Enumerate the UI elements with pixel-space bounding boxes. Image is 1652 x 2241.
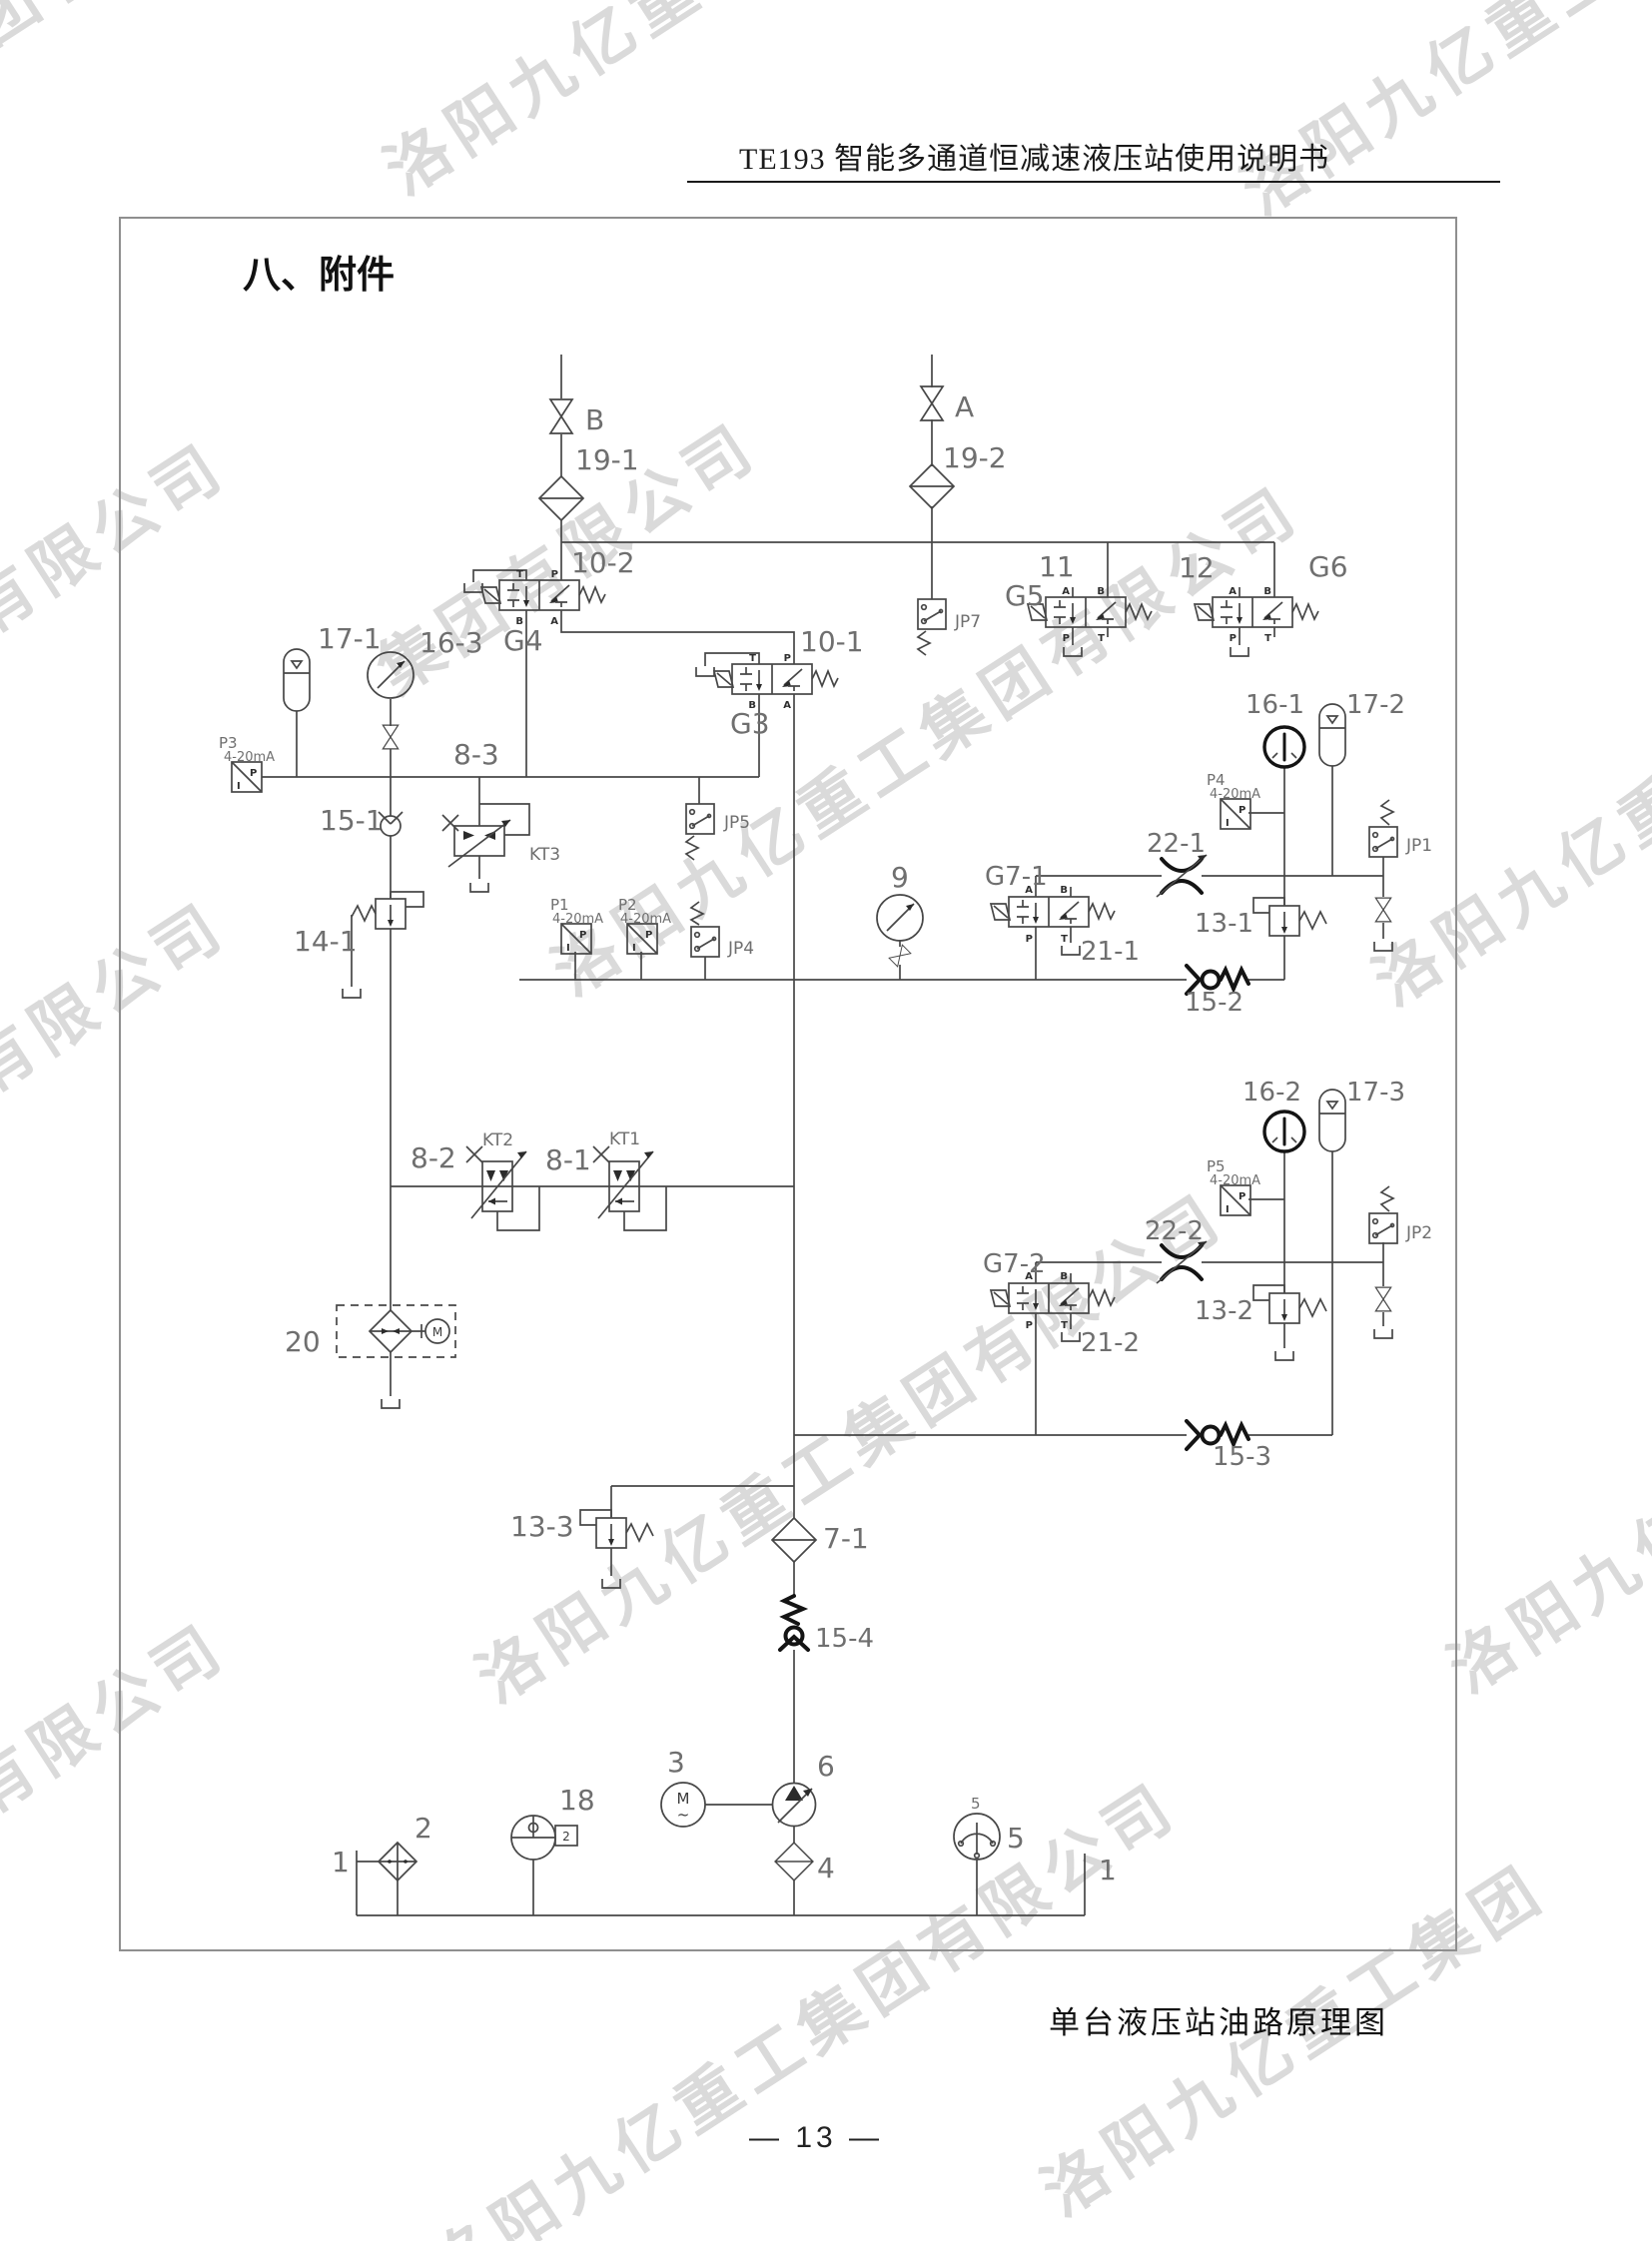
test-valve-9 [889, 945, 911, 967]
label-G4: G4 [503, 624, 543, 657]
port-letter: B [1263, 586, 1271, 597]
solenoid-valve-G6 [1195, 597, 1318, 627]
pipe-lines [262, 355, 1383, 1915]
port-letter: P [1239, 1191, 1245, 1202]
label-JP1: JP1 [1405, 836, 1432, 856]
label-15-2: 15-2 [1185, 988, 1243, 1018]
motor-letter: M [432, 1325, 442, 1339]
label-8-1: 8-1 [545, 1143, 591, 1176]
transmitter-P4: P I [1221, 799, 1250, 829]
label-10-1: 10-1 [800, 625, 864, 658]
port-letter: P [1239, 805, 1245, 816]
port-letter: B [1097, 586, 1105, 597]
circulation-unit-20: M [337, 1305, 455, 1357]
label-21-2: 21-2 [1081, 1328, 1140, 1358]
port-letter: A [783, 700, 791, 711]
pressure-switch-JP1 [1369, 800, 1397, 857]
filter-19-1 [539, 476, 583, 520]
port-letter: I [1226, 818, 1230, 829]
transmitter-P5: P I [1221, 1185, 1250, 1215]
label-20: 20 [285, 1325, 321, 1358]
drain-valve-jp1 [1375, 898, 1390, 922]
label-G5: G5 [1005, 579, 1045, 612]
relief-valve-14-1 [352, 892, 423, 929]
label-1-left: 1 [332, 1846, 350, 1878]
label-19-1: 19-1 [575, 443, 639, 476]
level-gauge-18: 2 [511, 1816, 577, 1860]
pressure-switch-JP7 [918, 599, 946, 655]
suction-filter-4 [775, 1843, 813, 1880]
solenoid-valve-G7-2 [991, 1283, 1115, 1313]
label-19-2: 19-2 [943, 441, 1007, 474]
relief-valve-13-3 [580, 1510, 653, 1548]
ac-symbol: ~ [677, 1806, 690, 1824]
label-17-2: 17-2 [1346, 690, 1405, 720]
throttle-valve-KT1 [593, 1146, 653, 1218]
port-letter: T [1061, 1320, 1068, 1331]
label-P1-range: 4-20mA [552, 912, 603, 927]
relief-valve-13-1 [1253, 898, 1326, 936]
label-13-1: 13-1 [1195, 909, 1253, 939]
motor-3: M ~ [661, 1783, 705, 1827]
label-JP4: JP4 [727, 939, 754, 959]
solenoid-valve-G3 [714, 664, 838, 694]
port-letter: I [632, 943, 636, 954]
label-5: 5 [1007, 1822, 1025, 1855]
label-10-2: 10-2 [571, 546, 635, 579]
port-letter: P [579, 930, 586, 941]
port-letter: P [1063, 633, 1070, 644]
label-KT3: KT3 [529, 845, 560, 865]
port-letter: T [1264, 633, 1271, 644]
label-17-3: 17-3 [1346, 1078, 1405, 1108]
gauge-digit: 2 [562, 1830, 570, 1844]
pressure-gauge-16-3 [368, 652, 413, 698]
temperature-gauge-5 [954, 1814, 1000, 1860]
port-letter: A [550, 616, 558, 627]
port-letter: P [1026, 1320, 1033, 1331]
orifice-22-1 [1157, 855, 1207, 897]
label-3: 3 [667, 1746, 685, 1779]
solenoid-valve-G5 [1028, 597, 1152, 627]
accumulator-17-3 [1319, 1090, 1345, 1151]
label-JP5: JP5 [723, 813, 750, 833]
label-7-1: 7-1 [823, 1522, 869, 1555]
throttle-valve-KT3 [442, 815, 510, 867]
port-letter: I [237, 781, 241, 792]
label-B: B [585, 403, 604, 436]
label-12: 12 [1179, 551, 1215, 584]
relief-valve-13-2 [1253, 1285, 1326, 1323]
pressure-switch-JP2 [1369, 1186, 1397, 1243]
pump-6 [773, 1784, 816, 1827]
port-letter: T [749, 653, 756, 664]
label-4: 4 [817, 1852, 835, 1884]
label-21-1: 21-1 [1081, 937, 1140, 967]
solenoid-valve-G7-1 [991, 897, 1115, 927]
label-16-2: 16-2 [1242, 1078, 1301, 1108]
shutoff-valve-A [921, 386, 943, 420]
accumulator-17-1 [284, 649, 310, 711]
label-1-right: 1 [1099, 1854, 1117, 1886]
label-A: A [955, 390, 974, 423]
drain-valve-jp2 [1375, 1287, 1390, 1311]
label-KT2: KT2 [482, 1130, 513, 1150]
filter-7-1 [772, 1518, 816, 1562]
label-13-3: 13-3 [510, 1510, 574, 1543]
pressure-gauge-16-2 [1264, 1112, 1304, 1151]
label-G7-2: G7-2 [983, 1249, 1046, 1279]
port-letter: A [1229, 586, 1237, 597]
label-15-4: 15-4 [815, 1624, 874, 1654]
label-P4-range: 4-20mA [1210, 787, 1260, 802]
port-letter: I [1226, 1204, 1230, 1215]
breather-filter-2 [379, 1843, 416, 1880]
throttle-valve-KT2 [466, 1146, 526, 1218]
label-2: 2 [414, 1812, 432, 1845]
pressure-switch-JP5 [686, 804, 714, 860]
label-5-small: 5 [971, 1795, 981, 1813]
label-G6: G6 [1308, 550, 1348, 583]
orifice-22-2 [1157, 1241, 1207, 1283]
label-KT1: KT1 [609, 1129, 640, 1149]
port-letter: T [516, 569, 523, 580]
label-15-3: 15-3 [1213, 1442, 1271, 1472]
component-labels: B 19-1 A 19-2 10-2 G4 10-1 G3 11 G5 12 G… [219, 390, 1432, 1886]
label-16-1: 16-1 [1245, 690, 1304, 720]
port-letter: P [250, 768, 257, 779]
label-17-1: 17-1 [318, 622, 382, 655]
port-letter: B [1060, 885, 1068, 896]
transmitter-P1: P I [561, 924, 591, 954]
solenoid-valve-G4 [481, 580, 605, 610]
label-JP2: JP2 [1405, 1223, 1432, 1243]
pressure-gauge-9 [877, 895, 923, 941]
check-valve-15-4 [780, 1596, 808, 1650]
label-P5-range: 4-20mA [1210, 1173, 1260, 1188]
label-13-2: 13-2 [1195, 1296, 1253, 1326]
label-P2-range: 4-20mA [620, 912, 671, 927]
shutoff-valve-B [550, 399, 572, 433]
port-letter: I [566, 943, 570, 954]
label-22-2: 22-2 [1145, 1216, 1204, 1246]
port-letter: T [1098, 633, 1105, 644]
label-14-1: 14-1 [294, 925, 358, 958]
port-letter: P [1230, 633, 1237, 644]
port-letter: A [1062, 586, 1070, 597]
port-letter: P [784, 653, 791, 664]
label-G3: G3 [730, 707, 770, 740]
pressure-switch-JP4 [691, 902, 719, 957]
port-letter: T [1061, 934, 1068, 945]
transmitter-P2: P I [627, 924, 657, 954]
gauge-isolator-16-3 [383, 725, 398, 749]
label-16-3: 16-3 [419, 626, 483, 659]
port-letter: B [1060, 1271, 1068, 1282]
label-JP7: JP7 [954, 612, 981, 632]
label-22-1: 22-1 [1147, 829, 1206, 859]
port-letter: P [551, 569, 558, 580]
label-15-1: 15-1 [320, 804, 384, 837]
label-9: 9 [891, 861, 909, 894]
label-8-2: 8-2 [411, 1141, 456, 1174]
accumulator-17-2 [1319, 704, 1345, 766]
label-G7-1: G7-1 [985, 862, 1048, 892]
manual-page: 集团有限公司 洛阳九亿重工集团 洛阳九亿重工 集团有限公司 集团有限公司 洛阳九… [0, 0, 1652, 2241]
schematic-svg: P I P I P I P I P I [0, 0, 1652, 2241]
label-6: 6 [817, 1750, 835, 1783]
port-letter: P [645, 930, 652, 941]
transmitter-P3: P I [232, 762, 262, 792]
label-8-3: 8-3 [453, 738, 499, 771]
label-P3-range: 4-20mA [224, 750, 275, 765]
port-letter: P [1026, 934, 1033, 945]
pressure-gauge-16-1 [1264, 727, 1304, 767]
label-18: 18 [559, 1784, 595, 1817]
